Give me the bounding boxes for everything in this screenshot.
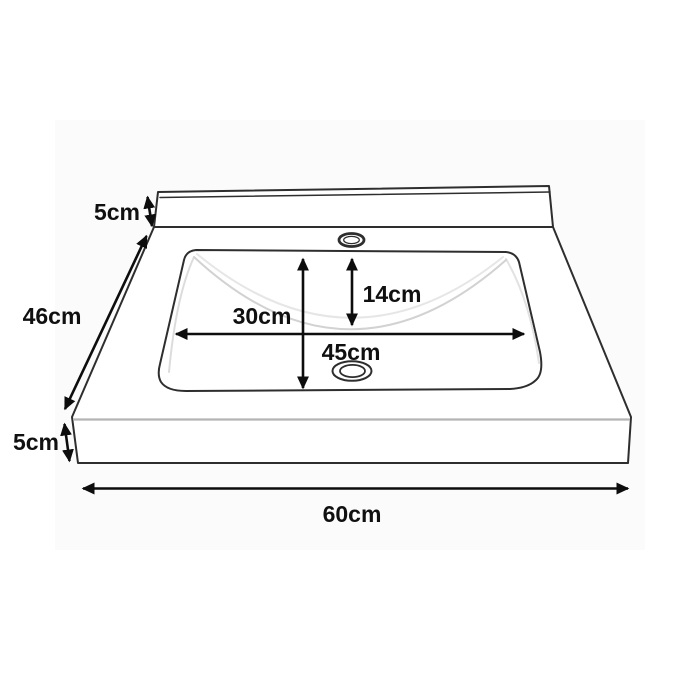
label-edge-thickness: 5cm [13,429,59,455]
label-width: 60cm [323,501,382,527]
diagram-canvas: 5cm 46cm 5cm 60cm 30cm 14cm 45cm [0,0,700,700]
faucet-hole [339,234,364,247]
label-depth: 46cm [23,303,82,329]
label-backsplash-height: 5cm [94,199,140,225]
washbasin-dimension-diagram: 5cm 46cm 5cm 60cm 30cm 14cm 45cm [0,0,700,700]
label-basin-horizontal: 45cm [322,339,381,365]
label-basin-inner: 14cm [363,281,422,307]
faucet-hole-inner-ring [344,236,360,243]
label-basin-vertical: 30cm [233,303,292,329]
drain-inner-ring [340,365,365,377]
